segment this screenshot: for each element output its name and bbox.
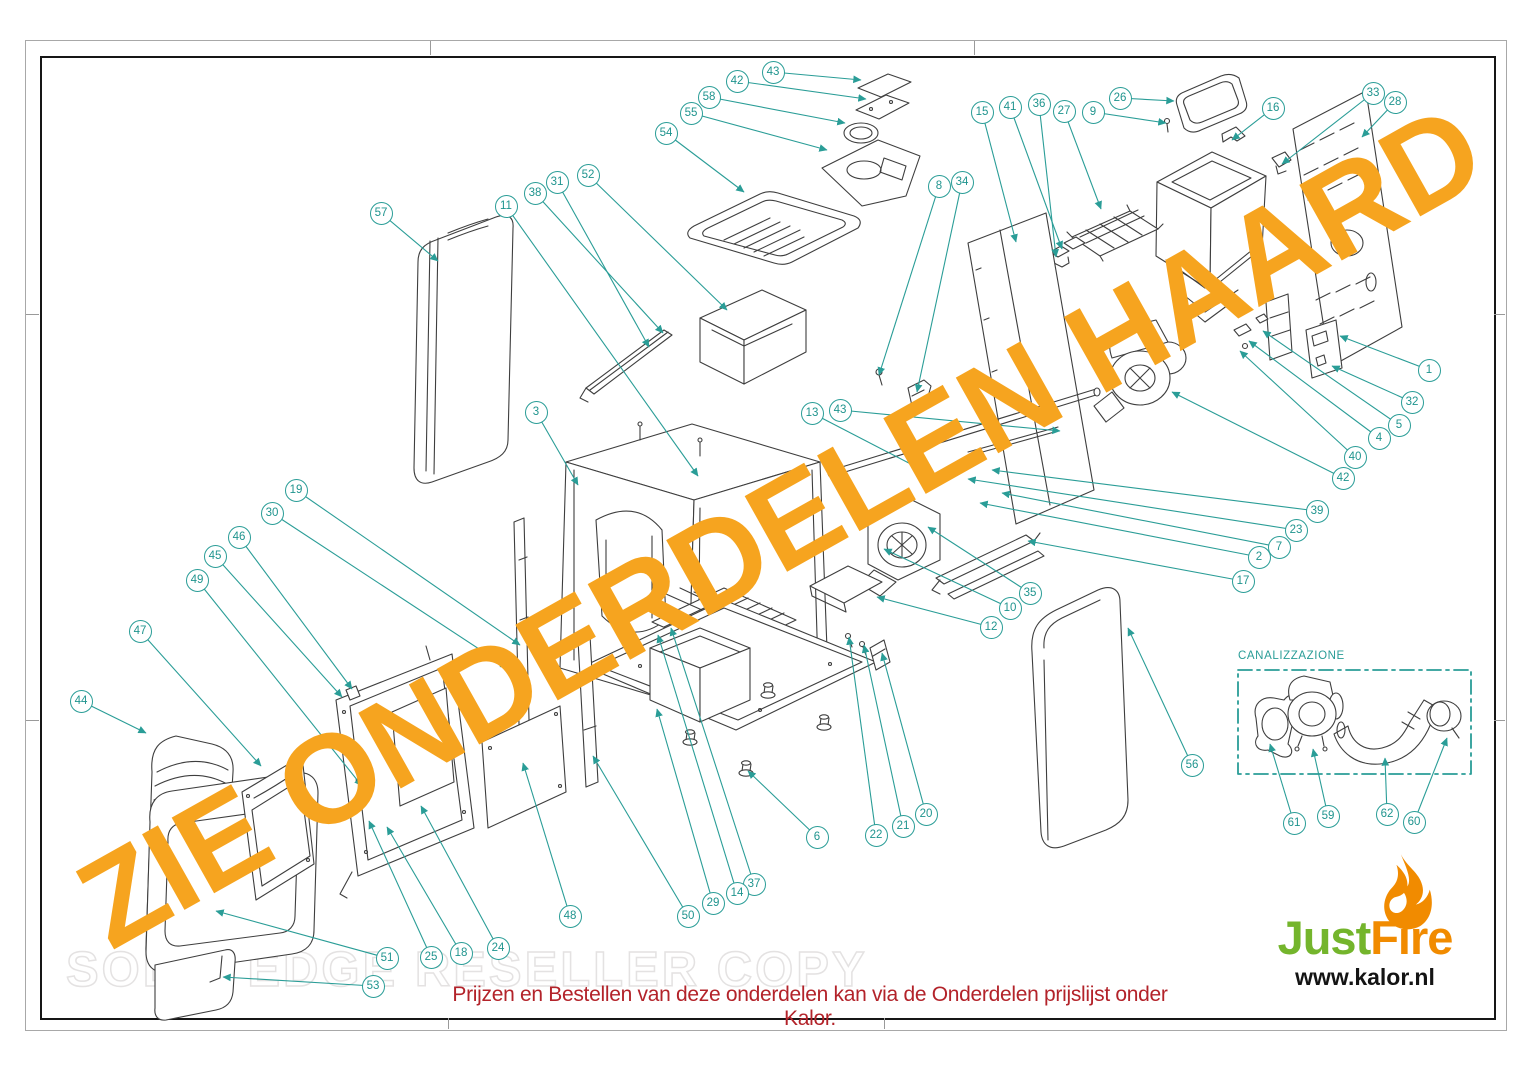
callout-48: 48 — [559, 905, 582, 928]
callout-40: 40 — [1344, 446, 1367, 469]
callout-23: 23 — [1285, 519, 1308, 542]
leader-42 — [737, 81, 866, 99]
callout-5: 5 — [1388, 414, 1411, 437]
callout-19: 19 — [285, 479, 308, 502]
canalizzazione-label: CANALIZZAZIONE — [1238, 650, 1345, 662]
callout-29: 29 — [702, 892, 725, 915]
part-top-plate — [822, 140, 920, 206]
callout-46: 46 — [228, 526, 251, 549]
callout-54: 54 — [655, 122, 678, 145]
leader-43 — [773, 72, 861, 80]
leader-17 — [1028, 541, 1243, 581]
callout-10: 10 — [999, 597, 1022, 620]
callout-44: 44 — [70, 690, 93, 713]
callout-25: 25 — [420, 946, 443, 969]
leader-15 — [982, 112, 1016, 242]
callout-21: 21 — [892, 815, 915, 838]
leader-3 — [536, 412, 578, 485]
callout-59: 59 — [1317, 805, 1340, 828]
callout-42b: 42 — [1332, 467, 1355, 490]
leader-11 — [506, 206, 698, 476]
callout-24: 24 — [487, 937, 510, 960]
leader-27 — [1064, 111, 1101, 209]
callout-38: 38 — [524, 182, 547, 205]
part-hopper-hinge — [1222, 127, 1245, 142]
part-hopper-gasket — [1176, 74, 1246, 132]
callout-20: 20 — [915, 803, 938, 826]
callout-30: 30 — [261, 502, 284, 525]
callout-43: 43 — [762, 61, 785, 84]
callout-45: 45 — [204, 545, 227, 568]
part-side-panel-right — [1032, 588, 1128, 848]
callout-27: 27 — [1053, 100, 1076, 123]
callout-56: 56 — [1181, 754, 1204, 777]
callout-58: 58 — [698, 86, 721, 109]
callout-11: 11 — [495, 195, 518, 218]
leader-31 — [557, 182, 649, 347]
part-foot — [683, 730, 697, 745]
callout-57: 57 — [370, 202, 393, 225]
leader-54 — [666, 133, 744, 192]
leader-56 — [1128, 628, 1192, 765]
callout-1: 1 — [1418, 359, 1441, 382]
callout-26: 26 — [1109, 87, 1132, 110]
callout-14: 14 — [726, 882, 749, 905]
part-top-grill — [688, 192, 861, 265]
part-diagonal-rail — [580, 330, 672, 402]
callout-47: 47 — [129, 620, 152, 643]
callout-17: 17 — [1232, 570, 1255, 593]
callout-31: 31 — [546, 171, 569, 194]
leader-60 — [1414, 738, 1447, 822]
part-hopper-lid — [700, 290, 806, 384]
callout-12: 12 — [980, 616, 1003, 639]
leader-2 — [980, 503, 1259, 557]
part-canal-hose — [1334, 700, 1438, 764]
logo-word-just: Just — [1278, 911, 1371, 964]
callout-61: 61 — [1283, 812, 1306, 835]
logo-word-fire: Fire — [1370, 911, 1452, 964]
callout-2: 2 — [1248, 546, 1271, 569]
callout-8: 8 — [928, 175, 951, 198]
part-display-glass — [858, 74, 911, 97]
callout-16: 16 — [1262, 97, 1285, 120]
justfire-logo: JustFire www.kalor.nl — [1250, 852, 1480, 991]
callout-41: 41 — [999, 96, 1022, 119]
order-note: Prijzen en Bestellen van deze onderdelen… — [450, 983, 1170, 1031]
callout-32: 32 — [1401, 391, 1424, 414]
logo-wordmark: JustFire — [1250, 914, 1480, 961]
callout-39: 39 — [1306, 500, 1329, 523]
parts-diagram-page: { "watermarks": { "diagonal_text": "ZIE … — [0, 0, 1531, 1085]
callout-42: 42 — [726, 70, 749, 93]
callout-9: 9 — [1082, 101, 1105, 124]
callout-18: 18 — [450, 942, 473, 965]
leader-53 — [223, 977, 373, 986]
callout-34: 34 — [951, 171, 974, 194]
part-canal-blower — [1288, 676, 1343, 751]
leader-58 — [709, 97, 845, 123]
leader-32 — [1332, 366, 1412, 402]
leader-20 — [882, 653, 926, 814]
callout-51: 51 — [376, 947, 399, 970]
leader-21 — [864, 645, 903, 826]
callout-60: 60 — [1403, 811, 1426, 834]
callout-15: 15 — [971, 101, 994, 124]
callout-22: 22 — [865, 824, 888, 847]
leader-38 — [535, 193, 663, 333]
leader-6 — [748, 771, 817, 837]
callout-55: 55 — [680, 102, 703, 125]
callout-35: 35 — [1019, 582, 1042, 605]
part-foot — [817, 715, 831, 730]
part-oval-ring — [844, 123, 878, 143]
leader-29 — [657, 709, 713, 903]
callout-36: 36 — [1028, 93, 1051, 116]
leader-50 — [593, 756, 688, 916]
callout-4: 4 — [1368, 427, 1391, 450]
callout-3: 3 — [525, 401, 548, 424]
part-screw-9 — [1165, 119, 1170, 133]
callout-52: 52 — [577, 164, 600, 187]
part-canal-flange — [1427, 701, 1461, 738]
callout-53: 53 — [362, 975, 385, 998]
callout-6: 6 — [806, 826, 829, 849]
callout-62: 62 — [1376, 803, 1399, 826]
callout-7: 7 — [1268, 536, 1291, 559]
part-side-panel-left — [414, 215, 513, 483]
callout-49: 49 — [186, 569, 209, 592]
logo-website: www.kalor.nl — [1250, 964, 1480, 991]
leader-12 — [877, 597, 991, 627]
leader-55 — [691, 113, 827, 150]
callout-50: 50 — [677, 905, 700, 928]
